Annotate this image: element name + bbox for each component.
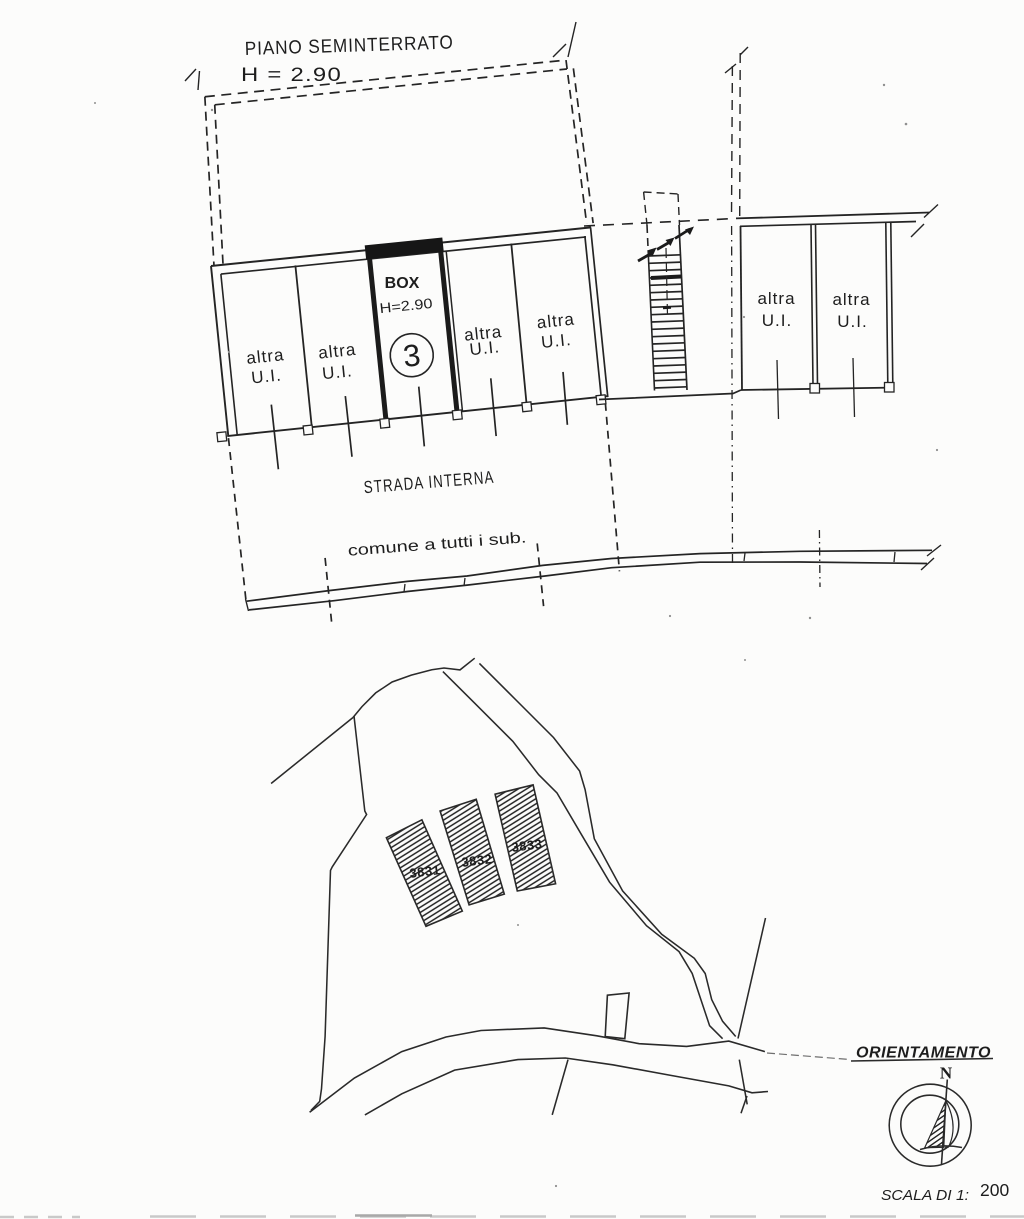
- svg-text:U.I.: U.I.: [250, 365, 282, 387]
- svg-text:SCALA DI 1:: SCALA DI 1:: [881, 1188, 969, 1204]
- svg-text:U.I.: U.I.: [321, 361, 353, 383]
- svg-text:N: N: [940, 1064, 953, 1083]
- svg-text:altra: altra: [317, 340, 357, 363]
- svg-text:altra: altra: [536, 310, 576, 333]
- svg-text:U.I.: U.I.: [469, 337, 501, 359]
- svg-text:U.I.: U.I.: [837, 312, 867, 331]
- svg-text:altra: altra: [832, 290, 870, 309]
- svg-text:U.I.: U.I.: [540, 330, 572, 352]
- svg-text:altra: altra: [757, 289, 795, 308]
- svg-text:BOX: BOX: [385, 275, 420, 292]
- svg-text:altra: altra: [246, 345, 286, 368]
- svg-text:200: 200: [980, 1180, 1009, 1200]
- svg-text:H = 2.90: H = 2.90: [241, 65, 342, 86]
- svg-text:3: 3: [401, 337, 422, 374]
- svg-text:U.I.: U.I.: [762, 311, 792, 330]
